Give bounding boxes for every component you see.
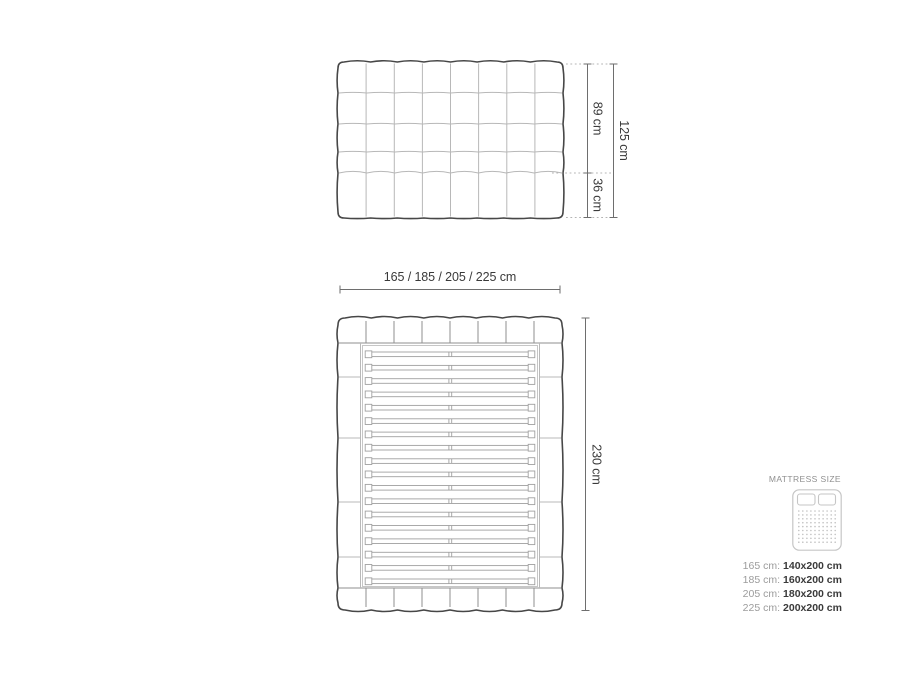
stitch-dot <box>806 530 808 532</box>
bed-frame-inner-lines <box>339 321 561 607</box>
stitch-dot <box>810 518 812 520</box>
dim-label-base-height: 36 cm <box>591 178 605 212</box>
frame-width-label: 185 cm: <box>743 574 780 586</box>
stitch-dot <box>806 541 808 543</box>
slat-bar <box>371 392 529 397</box>
stitch-dot <box>810 526 812 528</box>
slat-end-cap-right <box>528 471 535 478</box>
stitch-dot <box>814 538 816 540</box>
slat <box>365 458 535 465</box>
slat-end-cap-left <box>365 524 372 531</box>
stitch-dot <box>810 510 812 512</box>
slat-bar <box>371 432 529 437</box>
slat-end-cap-right <box>528 378 535 385</box>
stitch-dot <box>822 541 824 543</box>
slat-bar <box>371 512 529 517</box>
slat-bar <box>371 472 529 477</box>
headboard-front-view <box>337 61 564 219</box>
slat-end-cap-left <box>365 404 372 411</box>
legend-row: 205 cm:180x200 cm <box>743 587 842 601</box>
slat <box>365 565 535 572</box>
stitch-dot <box>802 522 804 524</box>
length-dimension: 230 cm <box>582 318 604 611</box>
stitch-dot <box>802 534 804 536</box>
mattress-size-value: 180x200 cm <box>783 588 842 600</box>
stitch-dot <box>802 510 804 512</box>
stitch-dot <box>818 510 820 512</box>
stitch-dot <box>814 526 816 528</box>
mattress-size-value: 160x200 cm <box>783 574 842 586</box>
stitch-dot <box>798 538 800 540</box>
stitch-dot <box>798 526 800 528</box>
stitch-dot <box>818 514 820 516</box>
stitch-dot <box>830 530 832 532</box>
stitch-dot <box>834 534 836 536</box>
stitch-dot <box>798 530 800 532</box>
stitch-dot <box>818 534 820 536</box>
stitch-dot <box>834 526 836 528</box>
slat-bar <box>371 579 529 584</box>
stitch-dot <box>822 526 824 528</box>
stitch-dot <box>814 530 816 532</box>
slat-end-cap-right <box>528 351 535 358</box>
page: { "colors": { "outline": "#474747", "gri… <box>0 0 900 675</box>
stitch-dot <box>810 538 812 540</box>
slat-bar <box>371 459 529 464</box>
pillow-right <box>819 494 836 505</box>
stitch-dot <box>818 530 820 532</box>
stitch-dot <box>830 538 832 540</box>
stitch-dot <box>810 522 812 524</box>
stitch-dot <box>802 518 804 520</box>
slat-base <box>365 351 535 585</box>
slat <box>365 444 535 451</box>
stitch-dot <box>802 541 804 543</box>
stitch-dot <box>814 518 816 520</box>
slat-end-cap-right <box>528 538 535 545</box>
frame-width-label: 225 cm: <box>743 602 780 614</box>
slat-end-cap-right <box>528 418 535 425</box>
slat <box>365 578 535 585</box>
slat-bar <box>371 526 529 531</box>
stitch-dot <box>834 518 836 520</box>
slat <box>365 524 535 531</box>
stitch-dot <box>818 538 820 540</box>
stitch-dot <box>798 541 800 543</box>
slat-bar <box>371 379 529 384</box>
pillow-left <box>798 494 816 505</box>
stitch-dot <box>826 518 828 520</box>
slat-end-cap-left <box>365 458 372 465</box>
stitch-dot <box>798 514 800 516</box>
stitch-dot <box>830 526 832 528</box>
stitch-dot <box>798 522 800 524</box>
stitch-dot <box>830 518 832 520</box>
stitch-dot <box>810 530 812 532</box>
slat <box>365 391 535 398</box>
stitch-dot <box>802 530 804 532</box>
slat-end-cap-left <box>365 498 372 505</box>
legend-title: MATTRESS SIZE <box>769 474 841 484</box>
slat-end-cap-left <box>365 551 372 558</box>
stitch-dot <box>830 541 832 543</box>
stitch-dot <box>826 530 828 532</box>
slat-end-cap-left <box>365 565 372 572</box>
stitch-dot <box>814 514 816 516</box>
slat <box>365 418 535 425</box>
stitch-dot <box>822 518 824 520</box>
stitch-dot <box>822 522 824 524</box>
stitch-dot <box>834 522 836 524</box>
stitch-dot <box>830 514 832 516</box>
mattress-size-value: 140x200 cm <box>783 560 842 572</box>
slat <box>365 431 535 438</box>
mattress-size-legend: MATTRESS SIZE 165 cm:140x200 cm 185 cm:1… <box>748 474 842 615</box>
slat-end-cap-left <box>365 538 372 545</box>
slat-end-cap-right <box>528 498 535 505</box>
stitch-dot <box>818 522 820 524</box>
legend-row: 185 cm:160x200 cm <box>743 573 842 587</box>
stitch-dot <box>806 526 808 528</box>
stitch-dot <box>814 534 816 536</box>
slat-end-cap-right <box>528 565 535 572</box>
stitch-dot <box>822 530 824 532</box>
stitch-dot <box>802 514 804 516</box>
legend-row: 225 cm:200x200 cm <box>743 601 842 615</box>
slat-end-cap-left <box>365 378 372 385</box>
stitch-dot <box>822 538 824 540</box>
slat-bar <box>371 486 529 491</box>
slat-end-cap-right <box>528 524 535 531</box>
stitch-dot <box>834 541 836 543</box>
stitch-dot <box>810 541 812 543</box>
stitch-dot <box>826 541 828 543</box>
dim-label-widths: 165 / 185 / 205 / 225 cm <box>384 270 516 284</box>
stitch-dot <box>826 526 828 528</box>
stitch-dot <box>798 534 800 536</box>
stitch-dot <box>814 510 816 512</box>
stitch-dot <box>826 534 828 536</box>
slat-end-cap-left <box>365 511 372 518</box>
bed-top-view <box>337 317 563 612</box>
slat-end-cap-left <box>365 418 372 425</box>
stitch-dot <box>810 534 812 536</box>
slat-end-cap-right <box>528 551 535 558</box>
stitch-dot <box>806 534 808 536</box>
slat-end-cap-right <box>528 391 535 398</box>
stitch-dot <box>806 538 808 540</box>
slat <box>365 351 535 358</box>
slat <box>365 498 535 505</box>
slat-bar <box>371 552 529 557</box>
slat-bar <box>371 405 529 410</box>
stitch-dot <box>814 541 816 543</box>
stitch-dot <box>798 510 800 512</box>
slat-end-cap-left <box>365 444 372 451</box>
stitch-dot <box>826 522 828 524</box>
slat-end-cap-left <box>365 364 372 371</box>
stitch-dot <box>818 518 820 520</box>
stitch-dot <box>810 514 812 516</box>
slat-end-cap-right <box>528 458 535 465</box>
dim-label-headboard-height: 89 cm <box>591 102 605 136</box>
slat-end-cap-left <box>365 351 372 358</box>
slat-bar <box>371 539 529 544</box>
slat-bar <box>371 445 529 450</box>
bed-dimensions-sheet: 89 cm 36 cm 125 cm 165 / 185 / 205 / 225… <box>0 0 900 675</box>
slat-end-cap-right <box>528 511 535 518</box>
stitch-dot <box>806 514 808 516</box>
headboard-tufting-grid <box>339 64 562 217</box>
stitch-dot <box>802 526 804 528</box>
slat-end-cap-right <box>528 444 535 451</box>
stitch-dot <box>830 534 832 536</box>
slat-end-cap-right <box>528 484 535 491</box>
slat <box>365 404 535 411</box>
slat-end-cap-left <box>365 578 372 585</box>
slat <box>365 471 535 478</box>
stitch-dot <box>830 522 832 524</box>
stitch-dot <box>798 518 800 520</box>
slat-end-cap-right <box>528 431 535 438</box>
stitch-dot <box>818 526 820 528</box>
stitch-dot <box>834 514 836 516</box>
stitch-dot <box>818 541 820 543</box>
slat-end-cap-left <box>365 484 372 491</box>
stitch-dot <box>806 522 808 524</box>
slat-bar <box>371 365 529 370</box>
mattress-icon <box>792 489 842 551</box>
stitch-dot <box>802 538 804 540</box>
slat-bar <box>371 352 529 357</box>
slat <box>365 364 535 371</box>
stitch-dot <box>826 510 828 512</box>
stitch-dot <box>822 534 824 536</box>
mattress-size-value: 200x200 cm <box>783 602 842 614</box>
slat-end-cap-right <box>528 404 535 411</box>
slat <box>365 378 535 385</box>
slat <box>365 551 535 558</box>
slat-end-cap-left <box>365 391 372 398</box>
slat-bar <box>371 419 529 424</box>
slat-end-cap-left <box>365 431 372 438</box>
slat <box>365 484 535 491</box>
legend-row: 165 cm:140x200 cm <box>743 559 842 573</box>
legend-rows: 165 cm:140x200 cm 185 cm:160x200 cm 205 … <box>743 559 842 615</box>
stitch-dot <box>834 530 836 532</box>
stitch-dot <box>834 538 836 540</box>
slat-bar <box>371 499 529 504</box>
slat-end-cap-right <box>528 578 535 585</box>
dim-label-length: 230 cm <box>590 444 604 484</box>
width-dimension: 165 / 185 / 205 / 225 cm <box>340 270 560 294</box>
slat <box>365 511 535 518</box>
frame-width-label: 205 cm: <box>743 588 780 600</box>
slat-end-cap-left <box>365 471 372 478</box>
stitch-dot <box>806 518 808 520</box>
stitch-dot <box>822 510 824 512</box>
frame-width-label: 165 cm: <box>743 560 780 572</box>
slat <box>365 538 535 545</box>
stitch-dot <box>830 510 832 512</box>
stitch-dot <box>814 522 816 524</box>
slat-bar <box>371 566 529 571</box>
stitch-dot <box>806 510 808 512</box>
stitch-dot <box>826 514 828 516</box>
stitch-dot <box>822 514 824 516</box>
stitch-dot <box>834 510 836 512</box>
stitch-dot <box>826 538 828 540</box>
dim-label-total-height: 125 cm <box>617 120 631 160</box>
slat-end-cap-right <box>528 364 535 371</box>
